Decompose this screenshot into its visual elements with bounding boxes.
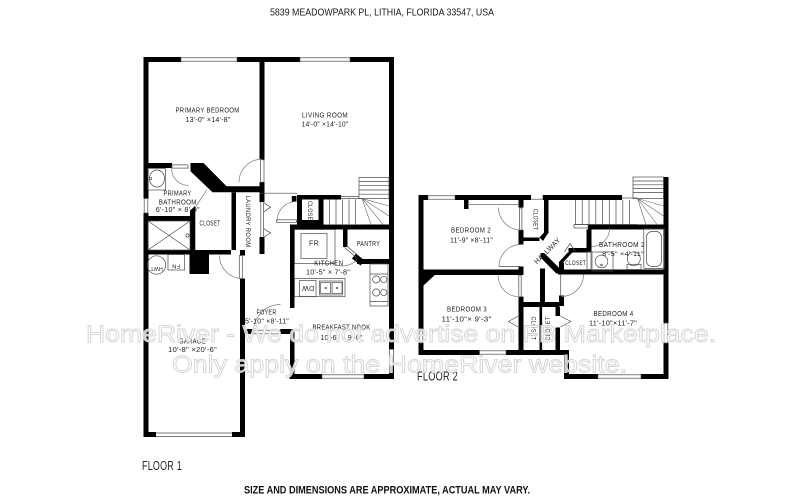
svg-text:6'-10" × 8'-9": 6'-10" × 8'-9" bbox=[156, 205, 200, 214]
svg-text:BEDROOM 2: BEDROOM 2 bbox=[451, 226, 491, 235]
svg-text:FOYER: FOYER bbox=[257, 308, 277, 317]
svg-text:CLOSET: CLOSET bbox=[532, 209, 539, 230]
svg-text:SIZE AND DIMENSIONS ARE APPROX: SIZE AND DIMENSIONS ARE APPROXIMATE, ACT… bbox=[244, 485, 530, 497]
svg-text:BEDROOM 4: BEDROOM 4 bbox=[594, 309, 634, 318]
svg-text:13'-0" ×14'-8": 13'-0" ×14'-8" bbox=[186, 115, 231, 124]
svg-text:FLOOR 1: FLOOR 1 bbox=[142, 458, 182, 473]
svg-text:PRIMARY: PRIMARY bbox=[164, 189, 192, 198]
svg-text:DW: DW bbox=[302, 284, 314, 291]
svg-text:HWT: HWT bbox=[150, 265, 163, 271]
svg-text:CLOSET: CLOSET bbox=[200, 221, 221, 228]
svg-text:LAUNDRY ROOM: LAUNDRY ROOM bbox=[244, 196, 251, 248]
svg-text:CLOSET: CLOSET bbox=[565, 260, 586, 267]
svg-text:10'-5" × 7'-8": 10'-5" × 7'-8" bbox=[306, 267, 350, 276]
svg-text:5839 MEADOWPARK PL, LITHIA, FL: 5839 MEADOWPARK PL, LITHIA, FLORIDA 3354… bbox=[270, 6, 494, 18]
svg-text:FN: FN bbox=[172, 263, 180, 269]
svg-text:FR: FR bbox=[309, 241, 319, 248]
svg-text:8'-5" ×4'-11": 8'-5" ×4'-11" bbox=[602, 251, 644, 258]
svg-text:BEDROOM 3: BEDROOM 3 bbox=[447, 305, 487, 314]
svg-text:HomeRiver - We do not advertis: HomeRiver - We do not advertise on FB Ma… bbox=[86, 321, 716, 348]
svg-text:Only apply on the HomeRiver we: Only apply on the HomeRiver website. bbox=[172, 352, 627, 379]
svg-text:11'-9" ×8'-11": 11'-9" ×8'-11" bbox=[450, 236, 493, 245]
svg-text:PANTRY: PANTRY bbox=[357, 241, 381, 248]
svg-text:LIVING ROOM: LIVING ROOM bbox=[302, 111, 348, 120]
svg-text:KITCHEN: KITCHEN bbox=[314, 258, 343, 267]
svg-text:14'-0" ×14'-10": 14'-0" ×14'-10" bbox=[302, 120, 349, 129]
svg-text:PRIMARY BEDROOM: PRIMARY BEDROOM bbox=[176, 106, 240, 115]
svg-text:CLOSET: CLOSET bbox=[306, 201, 313, 224]
svg-text:BATHROOM 2: BATHROOM 2 bbox=[599, 242, 645, 249]
